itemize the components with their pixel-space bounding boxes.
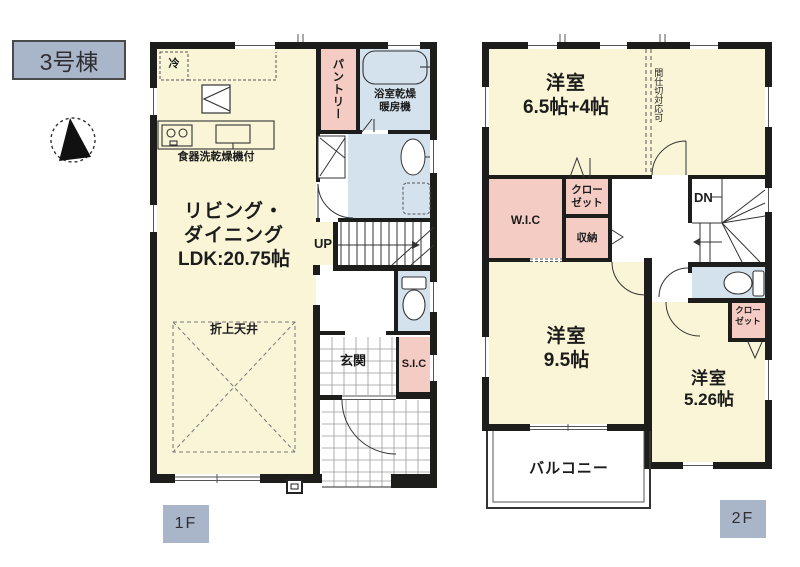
sic-label: S.I.C: [397, 358, 431, 372]
closet-a-label: クロー ゼット: [566, 184, 608, 210]
linen-closet: [318, 136, 345, 178]
stairs-down-label: DN: [694, 190, 713, 206]
floor1-badge: 1F: [163, 505, 209, 543]
ldk-label: リビング・ ダイニング LDK:20.75帖: [158, 200, 310, 271]
raised-ceiling-label: 折上天井: [173, 322, 295, 337]
floor2-badge: 2F: [720, 500, 766, 538]
wic-label: W.I.C: [489, 213, 562, 228]
bedroom2-label: 洋室 9.5帖: [489, 325, 644, 373]
porch-step-light: [287, 480, 302, 493]
storage-label: 収納: [566, 232, 608, 245]
balcony-label: バルコニー: [490, 460, 648, 479]
toilet-icon-1f: [402, 277, 426, 320]
north-arrow-icon: [51, 118, 95, 162]
toilet-icon-2f: [724, 271, 764, 296]
dishwasher-note: 食器洗乾燥機付: [158, 151, 274, 165]
building-number-badge: 3号棟: [12, 40, 126, 80]
bedroom1-label: 洋室 6.5帖+4帖: [487, 72, 645, 120]
stairs-up-label: UP: [314, 236, 332, 252]
bath-note: 浴室乾燥 暖房機: [360, 88, 430, 114]
wic-sliding-door: [530, 258, 562, 262]
floorplan-drawing: [0, 0, 800, 567]
floorplan-page: 3号棟 冷 食器洗乾燥機付 パントリー 浴室乾燥 暖房機 リビング・ ダイニング…: [0, 0, 800, 567]
fridge-label: 冷: [160, 58, 188, 72]
entrance-label: 玄関: [340, 353, 366, 369]
partition-note: 間仕切対応可: [652, 68, 663, 158]
pantry-label: パントリー: [330, 58, 344, 130]
cupboard-icon: [202, 85, 230, 113]
closet-b-label: クロー ゼット: [730, 305, 766, 326]
bedroom3-label: 洋室 5.26帖: [655, 368, 763, 411]
